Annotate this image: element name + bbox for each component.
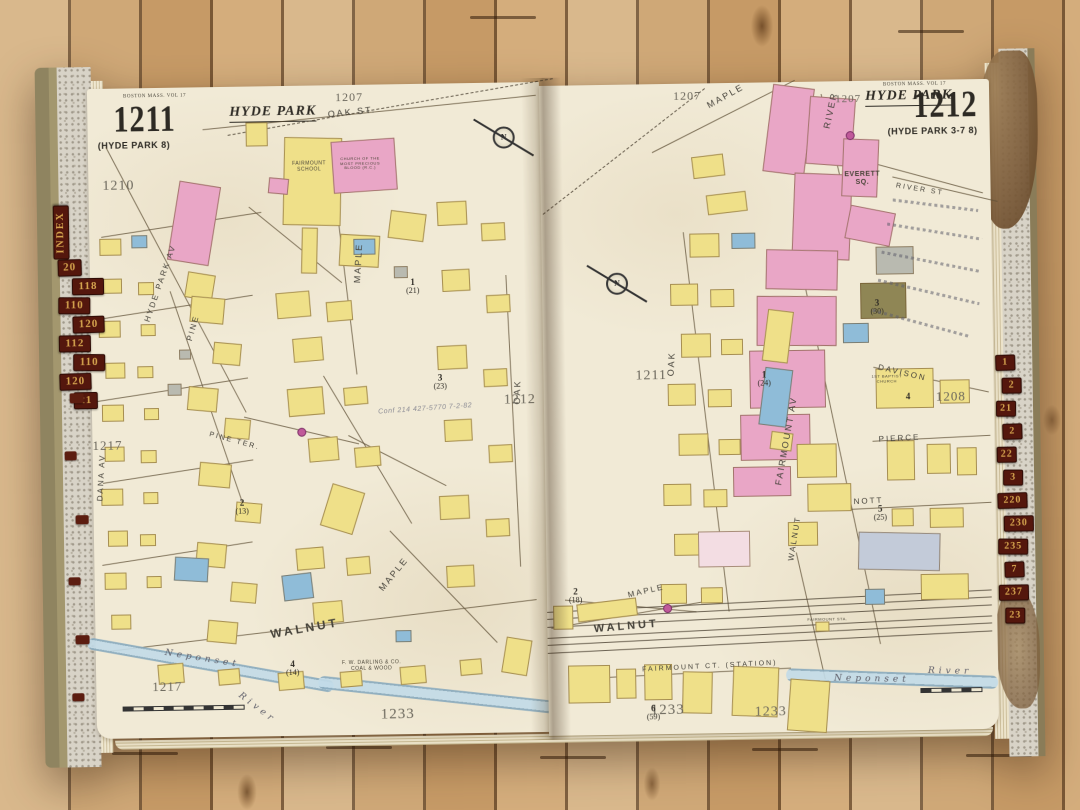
page-edge-fragment [72,693,84,701]
landmark-label: F. W. DARLING & CO. COAL & WOOD [342,660,401,672]
map-building [691,153,725,179]
map-building [841,138,879,197]
thumb-tab: 230 [1004,515,1034,531]
hydrant-dot [297,428,306,437]
page-edge-fragment [65,451,77,460]
map-building [439,495,470,520]
map-building [892,508,914,526]
block-number-sub: (59) [647,713,660,721]
block-number-sub: (24) [758,379,771,387]
block-number-sub: (18) [569,596,582,604]
map-building [354,446,382,468]
map-building [111,614,131,629]
street-line [336,208,357,375]
page-ref-number: 1211 [635,368,667,385]
map-building [718,439,740,455]
hydrant-dot [846,131,855,140]
map-building [187,386,219,413]
block-number: 2(13) [235,499,249,516]
thumb-tab: 2 [1002,377,1022,393]
map-building [207,620,239,645]
map-building [346,556,371,576]
map-building [343,386,368,406]
map-building [682,671,713,714]
thumb-tab: 220 [997,492,1028,509]
river-label: River [928,666,973,677]
block-number: 2(18) [569,587,583,604]
floor-seam [470,16,536,19]
map-building [141,324,156,336]
map-building [141,450,157,463]
map-building [765,249,838,290]
map-building [483,368,508,387]
map-building [395,630,411,642]
map-building [865,589,885,605]
thumb-tab: 1 [995,354,1016,371]
thumb-tabs-left: INDEX2011811012011211012021 [35,48,1035,64]
pencil-annotation [872,309,969,338]
map-building [668,384,696,406]
street-line [390,531,498,643]
page-ref-number: 1233 [381,706,415,724]
map-building [957,447,977,475]
map-building [295,546,325,570]
map-building [678,433,708,455]
map-building [292,336,324,362]
street-label: MAPLE [627,582,665,599]
compass-rose: N [493,126,515,148]
map-building [661,584,687,604]
map-building [721,339,743,355]
block-number-main: 4 [906,392,911,401]
map-building [281,572,314,601]
map-building [102,279,122,294]
map-building [436,201,467,226]
thumb-tab: 120 [72,316,105,334]
map-building [681,333,711,357]
thumb-tab: 21 [996,401,1016,417]
map-building [568,665,611,704]
map-building [108,530,128,546]
map-building [301,227,318,273]
thumb-tab: 20 [57,259,82,277]
page-1211: BOSTON MASS. VOL 17 1211 (HYDE PARK 8) H… [87,82,549,739]
map-building [446,565,475,588]
thumb-tab: 7 [1004,561,1025,578]
map-building [703,489,727,507]
block-number: 3(23) [433,373,447,390]
map-title-left: HYDE PARK [229,103,316,122]
map-building [212,342,242,366]
street-label: RIVER ST [895,182,944,198]
map-building [485,518,510,537]
page-ref-number: 1208 [936,389,966,404]
landmark-label: CHURCH OF THE MOST PRECIOUS BLOOD (R.C.) [340,156,380,170]
map-building [131,235,147,248]
map-building [230,582,258,604]
thumb-tab: 23 [1005,608,1025,624]
map-building [501,637,532,677]
street-label: MAPLE [705,82,745,111]
map-building [807,483,851,512]
page-ref-number: 1207 [335,91,363,105]
scale-bar [123,705,245,712]
page-ref-number: 1207 [673,89,701,103]
map-building [394,266,408,278]
street-line [98,295,252,320]
map-building [670,284,698,306]
compass-rose: N [606,273,628,295]
thumb-tab: 22 [997,447,1017,463]
map-building [399,665,426,685]
block-number-sub: (23) [434,382,447,390]
map-building [174,557,209,583]
street-label: PINE [185,314,201,342]
map-building [459,658,482,676]
map-building [710,289,734,307]
floor-seam [898,30,964,33]
index-tab: INDEX [53,205,70,259]
map-building [144,408,159,420]
thumb-tab: 235 [998,539,1028,555]
page-edge-fragment [75,635,89,644]
photo-of-atlas: BOSTON MASS. VOL 17 1211 (HYDE PARK 8) H… [0,0,1080,810]
map-building [140,534,156,546]
thumb-tab: 118 [72,278,104,296]
map-building [437,345,468,370]
map-building [927,444,951,474]
map-building [887,440,916,480]
map-building [441,269,470,292]
map-building [326,300,354,322]
page-ref-number: 1217 [152,680,182,695]
map-building [198,462,232,489]
thumb-tab: 112 [59,335,91,353]
block-number: 1(24) [757,370,771,387]
street-label: WALNUT [269,616,340,642]
map-building [287,386,325,417]
hydrant-dot [663,604,672,613]
map-building [486,294,511,313]
map-building [99,239,121,256]
map-building [105,363,125,379]
map-building [179,349,191,359]
block-number: 4(14) [286,660,300,677]
map-building [701,587,723,603]
landmark-label: FAIRMOUNT STA. [807,617,847,622]
landmark-label: 1ST BAPTIST CHURCH [871,374,902,384]
page-1212: BOSTON MASS. VOL 17 1212 (HYDE PARK 3-7 … [539,79,999,736]
street-label: OAK [665,351,677,377]
map-building [245,122,267,146]
map-building [706,191,748,216]
block-number: 6(59) [647,704,661,721]
map-building [731,233,755,249]
map-building [388,210,427,242]
river-label: Neponset [834,673,910,685]
thumb-tab: 110 [58,297,90,314]
thumb-tabs-right: 12212223220230235723723 [35,48,1035,64]
landmark-label: FAIRMOUNT SCHOOL [292,161,326,173]
page-edge-fragment [76,515,89,524]
map-building [708,389,732,407]
street-label: OAK ST. [327,104,376,119]
atlas-book: BOSTON MASS. VOL 17 1211 (HYDE PARK 8) H… [35,48,1046,772]
map-building [308,436,340,462]
map-building [268,177,289,195]
block-number: 1(21) [406,278,420,295]
map-building [320,483,365,535]
map-building [698,531,751,568]
map-building [102,405,124,422]
thumb-tab: 120 [59,373,92,391]
pencil-annotation [887,223,982,241]
map-building [689,233,719,257]
page-ref-number: 1217 [92,439,122,454]
page-edge-fragment [69,577,81,585]
pencil-annotation [893,198,979,212]
street-label: MAPLE [352,242,365,283]
page-ref-number: 1233 [755,704,787,721]
block-number-sub: (25) [874,514,887,522]
map-building [340,670,363,688]
page-ref-number: 1207 [835,93,861,106]
page-number-1211: 1211 [113,98,176,142]
scale-bar [920,687,982,693]
map-building [921,573,969,600]
map-building [930,507,964,528]
map-building [787,678,831,733]
map-building [858,532,941,572]
map-building [147,576,162,588]
page-edge-fragment [70,393,84,403]
page-subtitle-1211: (HYDE PARK 8) [98,140,170,151]
page-subtitle-1212: (HYDE PARK 3-7 8) [888,125,978,136]
map-building [815,621,829,631]
landmark-label: EVERETT SQ. [844,171,880,188]
map-building [444,419,473,442]
thumb-tab: 2 [1002,423,1023,440]
block-number-sub: (21) [406,287,419,295]
map-title-right: HYDE PARK [865,87,952,106]
map-building [143,492,158,504]
map-building [616,669,636,699]
map-building [105,573,127,590]
thumb-tab: 237 [999,584,1029,600]
map-building [488,444,513,463]
page-ref-number: 1210 [102,178,134,195]
map-building [843,323,869,343]
pencil-annotation: Conf 214 427-5770 7-2-82 [378,402,472,416]
map-building [797,443,838,478]
street-label: MAPLE [377,555,411,593]
block-number: 5(25) [874,505,888,522]
thumb-tab: 110 [73,354,105,371]
block-number-sub: (13) [235,508,248,516]
thumb-tab: 3 [1003,470,1023,486]
map-building [168,384,182,396]
map-building [137,366,153,378]
map-building [275,290,311,319]
map-building [218,668,241,686]
map-building [663,484,691,506]
map-building [481,222,506,241]
block-number: 4 [906,392,911,401]
railroad-track [543,88,705,215]
block-number-sub: (14) [286,669,299,677]
